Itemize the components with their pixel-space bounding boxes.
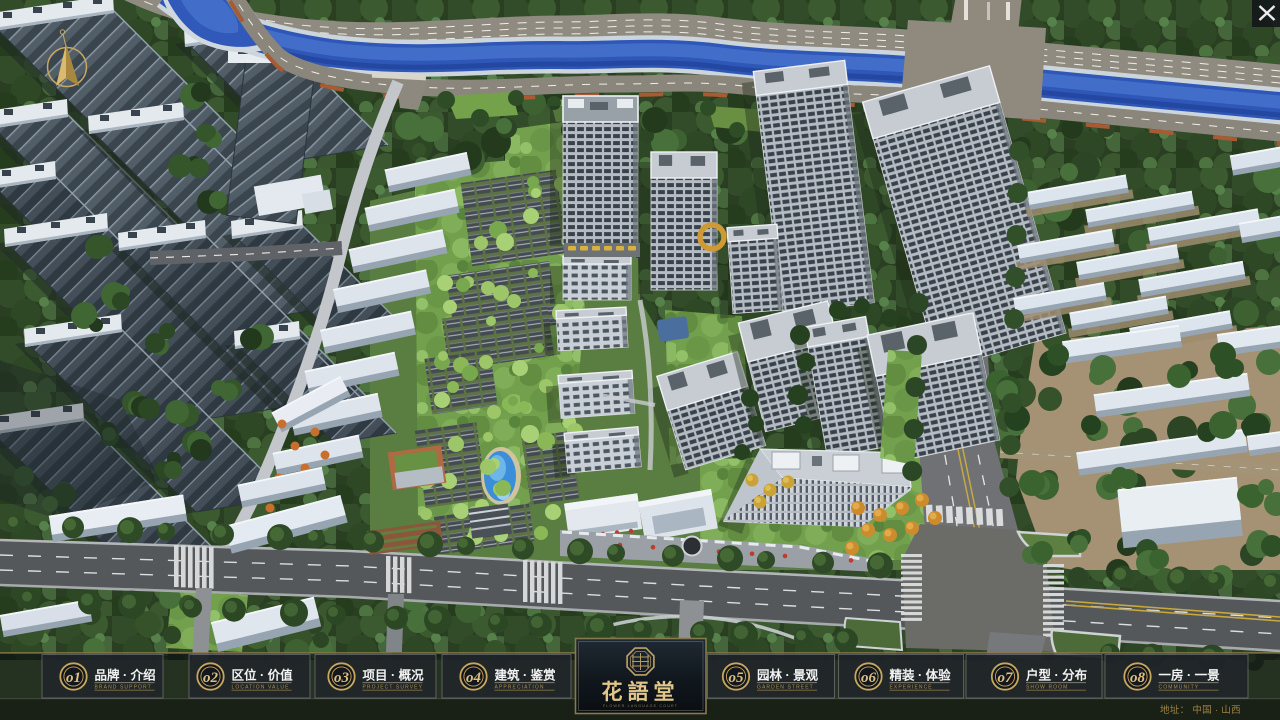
svg-text:o3: o3: [334, 670, 350, 686]
svg-text:建筑 · 鉴赏: 建筑 · 鉴赏: [495, 668, 557, 683]
svg-text:区位 · 价值: 区位 · 价值: [232, 668, 294, 683]
svg-text:o2: o2: [203, 670, 219, 686]
svg-text:LOCATION VALUE: LOCATION VALUE: [232, 685, 290, 691]
svg-text:PROJECT SURVEY: PROJECT SURVEY: [363, 685, 424, 691]
svg-text:花語堂: 花語堂: [602, 680, 680, 704]
svg-text:o6: o6: [861, 670, 877, 686]
svg-text:o5: o5: [729, 670, 745, 686]
svg-text:地址： 中国 · 山西: 地址： 中国 · 山西: [1160, 704, 1241, 716]
svg-text:o1: o1: [66, 670, 81, 686]
svg-text:SHOW ROOM: SHOW ROOM: [1026, 685, 1068, 691]
svg-text:精装 · 体验: 精装 · 体验: [890, 668, 952, 683]
svg-text:一房 · 一景: 一房 · 一景: [1159, 668, 1221, 683]
svg-text:户型 · 分布: 户型 · 分布: [1026, 668, 1088, 683]
svg-text:APPRECIATION: APPRECIATION: [495, 685, 545, 691]
svg-text:o4: o4: [466, 670, 482, 686]
svg-text:品牌 · 介绍: 品牌 · 介绍: [95, 668, 156, 683]
svg-text:o7: o7: [998, 670, 1014, 686]
svg-text:GARDEN STREET: GARDEN STREET: [757, 685, 814, 691]
svg-text:COMMUNITY: COMMUNITY: [1159, 685, 1200, 691]
svg-text:FLOWER LANGUAGE COURT: FLOWER LANGUAGE COURT: [603, 704, 678, 708]
svg-text:园林 · 景观: 园林 · 景观: [757, 668, 819, 683]
svg-text:BRAND SUPPORT: BRAND SUPPORT: [95, 685, 152, 691]
svg-text:项目 · 概况: 项目 · 概况: [363, 668, 425, 683]
svg-text:o8: o8: [1130, 670, 1146, 686]
svg-text:EXPERIENCE: EXPERIENCE: [890, 685, 933, 691]
